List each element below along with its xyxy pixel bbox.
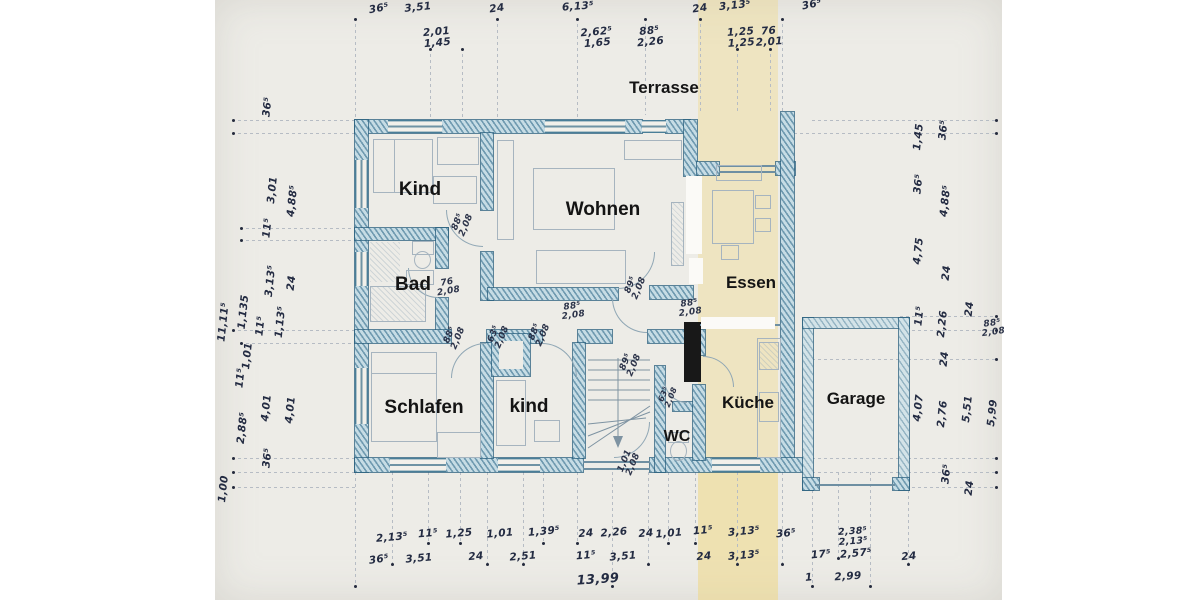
chimney [684,322,701,382]
chain-dot [354,18,357,21]
room-label-kind-2: kind [509,396,548,418]
dimension-label: 36⁵ [940,463,953,484]
chair-essen [721,245,739,260]
dimension-label: 2,51 [509,550,537,563]
chain-dot [232,132,235,135]
dimension-label: 2,38⁵ 2,13⁵ [838,526,868,548]
dimension-label: 11⁵ [692,525,713,538]
wall-bad-top [355,228,448,240]
dimension-label: 1,01 [655,527,683,540]
garage-wall-right [899,318,909,490]
dimension-label: 36⁵ [261,447,274,468]
chain-dot [240,227,243,230]
chain-dot [995,132,998,135]
table-kind2 [534,420,560,442]
dimension-label: 11⁵ [575,550,596,563]
door-size-label: 88⁵ 2,08 [560,301,586,323]
garage-wall-left [803,318,813,490]
floorplan-scan: 36⁵3,51246,13⁵243,13⁵36⁵2,01 1,452,62⁵ 1… [0,0,1200,600]
chain-line [497,18,498,120]
chain-dot [459,542,462,545]
dimension-label: 2,26 [600,526,628,539]
room-label-wc: WC [664,428,691,446]
chain-line [355,472,356,588]
chain-line [782,472,783,566]
sideboard-wohnen [624,140,682,160]
chain-dot [995,358,998,361]
dimension-label: 3,51 [609,550,637,563]
chain-dot [354,585,357,588]
wall-kind-wohnen [481,133,493,210]
wall-bad-right [436,228,448,268]
chain-dot [995,486,998,489]
garage-door-line [815,484,895,486]
dimension-label: 24 [941,265,954,281]
room-label-essen: Essen [726,273,776,293]
chain-line [392,472,393,566]
chain-dot [736,563,739,566]
room-label-terrasse: Terrasse [629,78,699,98]
chain-dot [781,18,784,21]
room-label-bad: Bad [395,274,431,296]
chain-line [737,48,738,112]
chain-dot [427,542,430,545]
chain-dot [496,18,499,21]
chain-line [240,228,355,229]
chair-essen [755,218,771,232]
chair-essen [755,195,771,209]
chain-dot [995,471,998,474]
dimension-label: 11⁵ [261,217,274,238]
dimension-label: 24 [489,2,506,15]
dimension-label: 11⁵ [234,367,247,388]
toilet-bad-bowl [414,251,431,269]
wardrobe-schlafen [437,432,481,458]
chain-line [240,240,355,241]
bed-schlafen-pillows [371,352,437,374]
whiteout [689,258,703,284]
shelf-wohnen [497,140,514,240]
chain-dot [907,563,910,566]
chain-line [232,458,355,459]
chain-dot [232,119,235,122]
whiteout [701,317,775,329]
chain-line [794,133,998,134]
dimension-label: 1,01 [486,527,514,540]
bed-kind-pillow [373,139,395,193]
dimension-label: 2,99 [834,571,862,584]
room-label-kind-1: Kind [399,179,441,201]
chain-line [232,133,355,134]
chain-dot [486,563,489,566]
chain-line [812,120,998,121]
dimension-label: 24 [638,528,654,540]
bench-essen [716,165,762,181]
dimension-label: 24 [939,351,952,367]
chain-dot [461,48,464,51]
chain-dot [644,18,647,21]
chain-line [900,487,998,488]
chain-line [232,120,355,121]
wall-wc-top [673,402,695,411]
chain-dot [240,239,243,242]
window-kind-side [355,160,368,208]
dimension-label: 3,51 [405,552,433,565]
chain-dot [232,329,235,332]
dimension-label: 1 [805,572,814,584]
door-size-label: 88⁵ 2,08 [980,318,1006,340]
dimension-label: 2,62⁵ 1,65 [580,26,614,51]
wall-bad-right [436,298,448,332]
chain-line [648,472,649,566]
chain-dot [811,585,814,588]
dimension-label: 11⁵ [254,315,267,336]
chain-dot [699,18,702,21]
chain-line [232,472,355,473]
dimension-label: 36⁵ [775,528,796,541]
dimension-label: 24 [964,301,977,317]
room-label-schlafen: Schlafen [384,397,463,419]
dimension-label: 11⁵ [417,528,438,541]
table-essen [712,190,754,244]
wall-kueche-left [693,385,705,460]
dimension-label: 1,25 1,25 [727,26,756,50]
wall-right [781,112,794,460]
whiteout [686,176,702,254]
dimension-label: 13,99 [576,572,619,589]
dimension-label: 36⁵ [912,173,925,194]
chain-line [770,48,771,112]
sofa-wohnen [536,250,626,284]
step-wohnen-essen [671,202,684,266]
window-kind [388,120,442,133]
dimension-label: 24 [692,2,709,15]
wall-row-top [578,330,612,343]
chain-dot [647,563,650,566]
chain-dot [542,542,545,545]
chain-dot [576,18,579,21]
dimension-label: 24 [468,551,484,563]
dimension-label: 1,25 [445,527,473,540]
chain-dot [694,542,697,545]
chain-line [232,330,355,331]
chain-line [870,472,871,588]
dimension-label: 88⁵ 2,26 [635,25,664,50]
chain-dot [869,585,872,588]
wall-kind-stairs [573,343,585,458]
chain-dot [995,119,998,122]
chain-dot [232,486,235,489]
dimension-label: 24 [901,551,917,563]
window-kind2 [498,458,540,472]
door-size-label: 76 2,08 [435,277,461,300]
room-label-wohnen: Wohnen [566,199,641,221]
paper-background [215,0,1002,600]
chain-dot [995,457,998,460]
dimension-label: 11⁵ [913,305,926,326]
dimension-label: 24 [578,528,594,540]
chain-line [700,18,701,112]
chain-dot [781,563,784,566]
room-label-garage: Garage [827,389,886,409]
chain-line [430,48,431,120]
chain-dot [391,563,394,566]
chain-dot [576,542,579,545]
dimension-label: 24 [696,551,712,563]
window-schlafen [390,458,446,472]
chain-line [240,343,355,344]
dimension-label: 24 [964,480,977,496]
chain-dot [769,48,772,51]
room-label-kueche: Küche [722,393,774,413]
wall-wohnen-bottom [650,286,693,299]
door-size-label: 88⁵ 2,08 [677,298,703,320]
dimension-label: 24 [286,275,299,291]
window-schlafen-side [355,368,368,424]
dimension-label: 17⁵ [810,549,831,562]
chain-line [577,18,578,120]
window-bad [355,252,368,286]
garage-door-post [893,478,909,490]
wall-row-top [355,330,451,343]
window-wohnen-2 [642,120,666,133]
dimension-label: 6,13⁵ [562,0,595,13]
chain-line [232,487,355,488]
chain-line [462,48,463,120]
dimension-label: 36⁵ [261,96,274,117]
chain-dot [232,457,235,460]
dimension-label: 76 2,01 [755,25,784,49]
chain-dot [522,563,525,566]
wall-wohnen-bottom [488,288,618,300]
chain-dot [232,471,235,474]
garage-wall-top [803,318,909,328]
appliance-kueche [759,342,779,370]
wardrobe-kind [437,137,479,165]
chain-line [355,18,356,120]
dimension-label: 36⁵ [937,119,950,140]
window-wohnen [545,120,625,133]
window-kueche [712,458,760,472]
dimension-label: 2,01 1,45 [423,26,452,50]
wall-wohnen-essen-corner [684,120,697,176]
chain-line [487,472,488,566]
chain-dot [667,542,670,545]
